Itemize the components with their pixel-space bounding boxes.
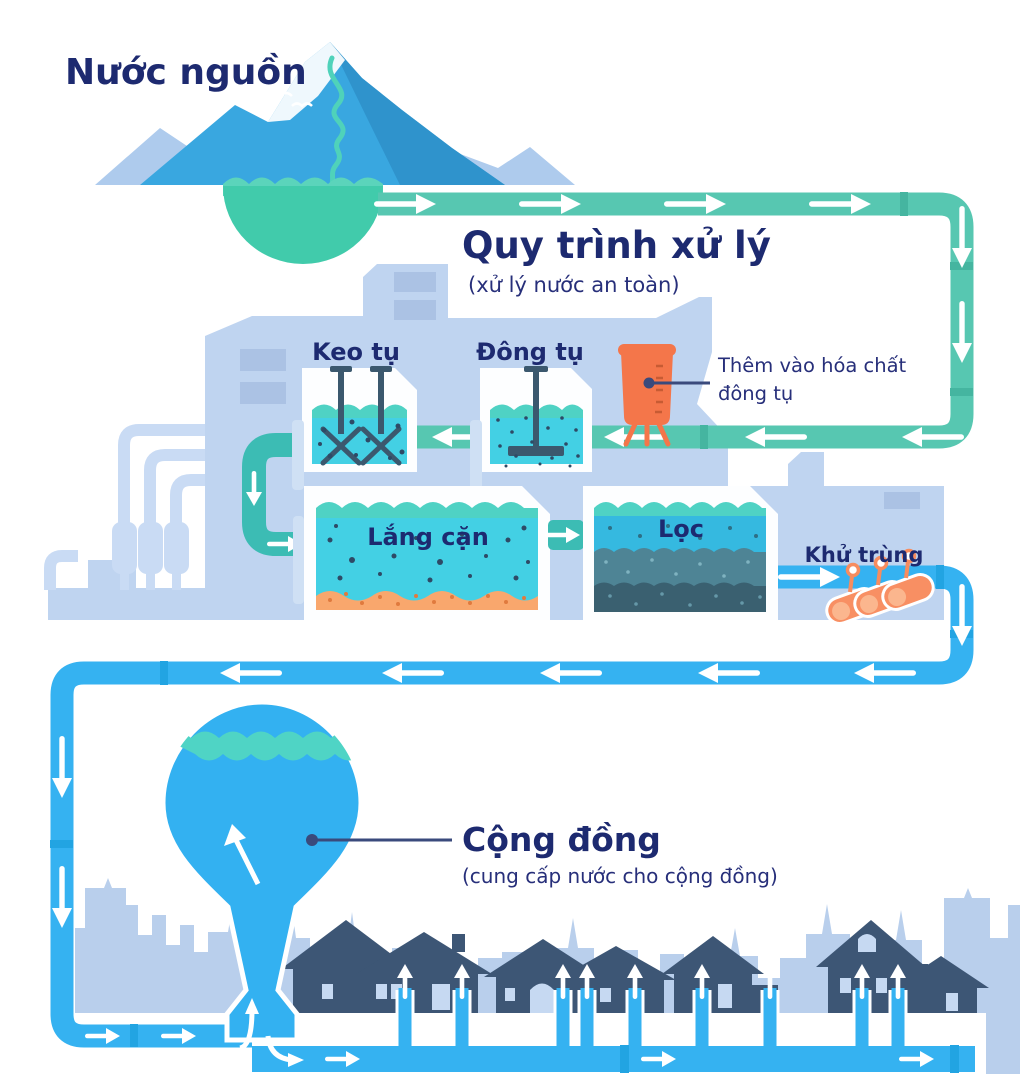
process-title: Quy trình xử lý <box>462 224 771 267</box>
community-subtitle: (cung cấp nước cho cộng đồng) <box>462 864 778 888</box>
filter-media-layer <box>594 548 766 586</box>
label-coagulation: Keo tụ <box>312 338 400 366</box>
flocculation-tank <box>470 366 592 490</box>
water-treatment-infographic: Nước nguồn Quy trình xử lý (xử lý nước a… <box>0 0 1020 1074</box>
community-title: Cộng đồng <box>462 820 661 859</box>
chemical-annotation-line2: đông tụ <box>718 382 793 405</box>
filtration-tank <box>583 486 778 620</box>
sedimentation-tank <box>293 486 550 620</box>
chemical-annotation-line1: Thêm vào hóa chất <box>717 354 907 377</box>
pump-station-icon <box>50 430 205 590</box>
label-flocculation: Đông tụ <box>476 338 584 366</box>
coagulation-tank <box>292 366 417 490</box>
label-sedimentation: Lắng cặn <box>367 522 489 551</box>
tank-connector-arrow <box>545 520 584 550</box>
filter-gravel-layer <box>594 583 766 613</box>
label-disinfection: Khử trùng <box>805 543 924 567</box>
process-subtitle: (xử lý nước an toàn) <box>468 273 680 297</box>
label-filtration: Lọc <box>658 515 704 543</box>
source-title: Nước nguồn <box>65 52 307 93</box>
infographic-illustration: Nước nguồn Quy trình xử lý (xử lý nước a… <box>0 0 1020 1074</box>
source-pool-icon <box>223 178 383 264</box>
tank-water <box>316 502 538 610</box>
